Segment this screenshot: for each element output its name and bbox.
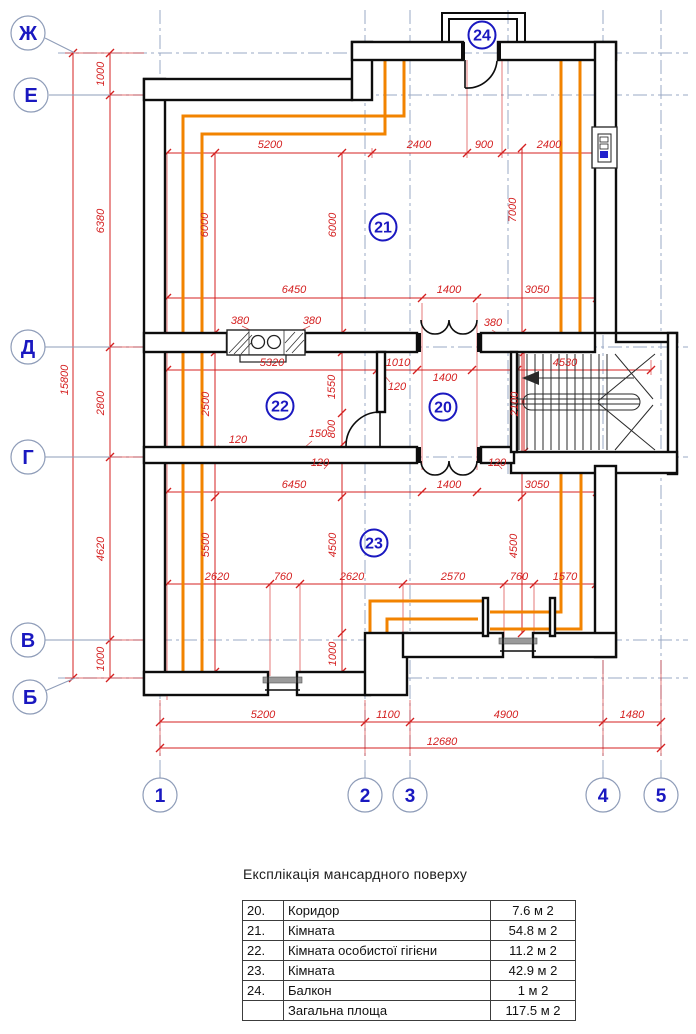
room-number: 20. [243,901,284,921]
dimension-label: 1400 [437,479,462,491]
axis-row-label: В [21,630,35,652]
dimension-label: 4500 [327,532,339,557]
table-row: 23. Кімната 42.9 м 2 [243,961,576,981]
dimension-label: 380 [303,315,322,327]
dimension-label: 150 [309,428,328,440]
dimension-label: 7000 [507,197,519,222]
staircase [511,354,655,450]
axis-col-label: 1 [155,786,166,807]
room-number: 22. [243,941,284,961]
dimension-label: 4500 [508,533,520,558]
dimension-label: 15800 [59,364,71,395]
table-row: 21. Кімната 54.8 м 2 [243,921,576,941]
axis-leader-lines [45,38,661,778]
room-name: Балкон [284,981,491,1001]
axis-row-label: Г [22,447,33,469]
dimension-label: 2620 [204,571,230,583]
dimension-label: 380 [231,315,250,327]
axis-col-label: 3 [405,786,416,807]
dimension-label: 1000 [327,641,339,666]
room-area: 7.6 м 2 [491,901,576,921]
room-number: 23. [243,961,284,981]
dimension-label: 1000 [95,61,107,86]
dimension-label: 120 [488,457,507,469]
room-number-label: 23 [365,536,383,553]
dimension-label: 2620 [339,571,365,583]
dimension-label: 1480 [620,709,645,721]
room-name: Кімната особистої гігієни [284,941,491,961]
room-number-label: 21 [374,220,392,237]
room-number [243,1001,284,1021]
room-area: 117.5 м 2 [491,1001,576,1021]
room22-door-swing [346,412,380,447]
stair-direction-arrow [522,371,539,385]
room-name: Кімната [284,961,491,981]
dimension-label: 3050 [525,479,550,491]
room-name: Коридор [284,901,491,921]
dimension-label: 5200 [258,139,283,151]
dimension-label: 2400 [536,139,562,151]
table-row: 20. Коридор 7.6 м 2 [243,901,576,921]
dimension-label: 4900 [494,709,519,721]
dimension-label: 1000 [95,646,107,671]
dimension-label: 120 [229,434,248,446]
dimension-label: 2570 [440,571,466,583]
dimension-label: 6380 [95,208,107,233]
double-door-top-swing [421,320,477,334]
dimension-label: 380 [484,317,503,329]
dimension-label: 2800 [95,390,107,416]
dimension-label: 6450 [282,479,307,491]
electrical-panel [592,127,617,168]
legend-title: Експлікація мансардного поверху [243,866,467,882]
dimension-label: 6000 [327,212,339,237]
table-row: Загальна площа 117.5 м 2 [243,1001,576,1021]
dimension-label: 5500 [200,532,212,557]
table-row: 24. Балкон 1 м 2 [243,981,576,1001]
dimension-label: 120 [388,381,407,393]
dimension-label: 1550 [326,374,338,399]
dimension-label: 5200 [251,709,276,721]
axis-row-label: Е [24,85,37,107]
room-area: 42.9 м 2 [491,961,576,981]
dimension-label: 1570 [553,571,578,583]
dimension-label: 6450 [282,284,307,296]
dimension-label: 2400 [406,139,432,151]
room-area: 1 м 2 [491,981,576,1001]
room-number-label: 22 [271,399,289,416]
room-area: 11.2 м 2 [491,941,576,961]
axis-row-label: Б [23,687,37,709]
dimension-label: 2100 [509,391,521,417]
axis-row-label: Д [21,337,35,359]
floor-plan-page: ЖЕДГВБ 12345 2021222324 5200240090024001… [0,0,696,1034]
room-area: 54.8 м 2 [491,921,576,941]
dimension-label: 760 [274,571,293,583]
floor-plan-drawing: ЖЕДГВБ 12345 2021222324 5200240090024001… [0,0,696,820]
dimension-label: 6000 [199,212,211,237]
axis-row-label: Ж [18,23,38,45]
balcony-door-swing [465,60,497,88]
legend-table: 20. Коридор 7.6 м 2 21. Кімната 54.8 м 2… [242,900,576,1021]
double-door-bottom-swing [421,461,477,475]
dimension-label: 800 [326,419,338,438]
room-number-label: 24 [473,28,491,45]
dimension-label: 1400 [437,284,462,296]
room-number: 24. [243,981,284,1001]
room-name: Кімната [284,921,491,941]
dimension-label: 4530 [553,357,578,369]
axis-col-label: 5 [656,786,667,807]
dimension-label: 5320 [260,357,285,369]
dimension-label: 1010 [386,357,411,369]
room-number-label: 20 [434,400,452,417]
dimension-label: 1100 [376,709,401,721]
dimension-label: 2500 [200,391,212,417]
dimension-label: 1400 [433,372,458,384]
room-number: 21. [243,921,284,941]
room-name: Загальна площа [284,1001,491,1021]
dimension-label: 4620 [95,536,107,561]
doors [346,60,497,475]
dimension-label: 760 [510,571,529,583]
axis-col-label: 2 [360,786,371,807]
dimension-label: 12680 [427,736,458,748]
dimension-label: 120 [311,457,330,469]
axis-col-label: 4 [598,786,609,807]
dimension-label: 3050 [525,284,550,296]
dimension-label: 900 [475,139,494,151]
table-row: 22. Кімната особистої гігієни 11.2 м 2 [243,941,576,961]
